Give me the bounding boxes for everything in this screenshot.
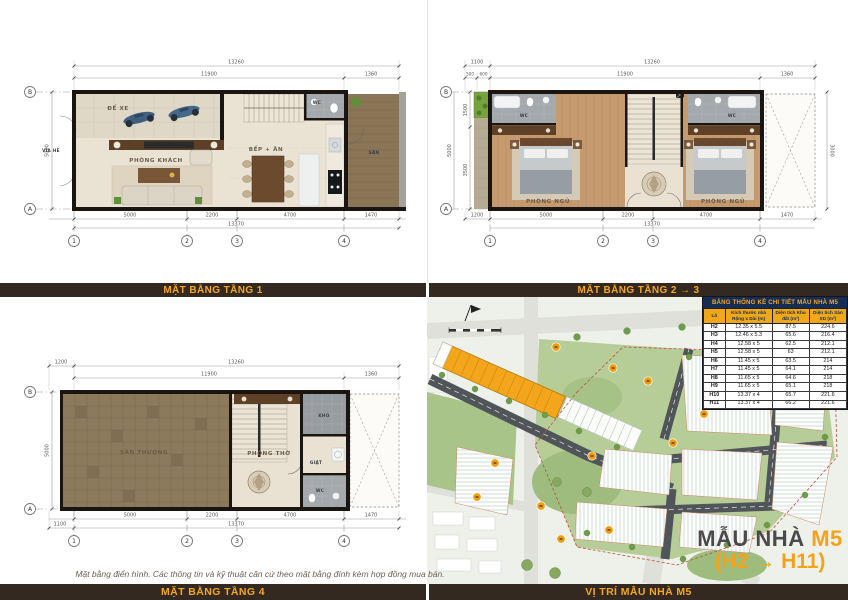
plan1-label-via-he: VỈA HÈ [42,148,60,153]
toilet-right [695,98,702,107]
table-row: H911.65 x 565.1218 [704,383,847,392]
grid-bubble-4: 4 [758,238,762,245]
caption-floor1: MẶT BẰNG TẦNG 1 [163,285,262,296]
wc-room [306,94,344,118]
table-row: H412.58 x 562.5212.1 [704,340,847,349]
spec-table-header-row: Lô Kích thước nhà Rộng x Dài (m) Diện tí… [704,309,847,324]
plan23-dim-bot-3: 4700 [700,213,713,219]
table-row: H1113.37 x 466.2221.6 [704,400,847,409]
col-header-floor-area: Diện tích Sàn XD (m²) [809,309,846,324]
grid-bubble-4: 4 [342,238,346,245]
toilet-left [527,98,534,107]
grid-bubble-2: 2 [601,238,605,245]
plan4-dim-bot-offset: 1100 [54,522,67,528]
col-header-land-area: Diện tích Khu đất (m²) [772,309,809,324]
plan1-dim-bot-2: 2200 [206,213,219,219]
plan23-dim-bot-total: 13370 [644,222,660,228]
plan23-dim-right-void: 3000 [829,144,835,157]
plan4-dim-bot-4: 1470 [365,513,378,519]
plan23-dim-500: 500 [466,72,474,77]
plan4-dim-bot-3: 4700 [284,513,297,519]
closet-right [688,126,760,135]
spec-table-title: BẢNG THỐNG KÊ CHI TIẾT MẪU NHÀ M5 [703,297,847,308]
floor-plan-4: 1200 13260 11900 1360 5000 5000 2200 470… [14,352,419,552]
grid-bubble-B: B [28,389,32,396]
toilet-f4 [309,494,316,503]
col-header-lo: Lô [704,309,726,324]
plan4-dim-bot-1: 5000 [124,513,137,519]
table-row: H212.35 x 5.587.5224.6 [704,323,847,332]
table-row: H512.58 x 563212.1 [704,349,847,358]
sofa [122,186,202,205]
plan1-dim-bot-4: 1470 [365,213,378,219]
plan1-dim-bot-1: 5000 [124,213,137,219]
floor-plan-2-3: 1100 13260 500 600 11900 1360 5000 1500 … [430,52,835,252]
caption-floor23: MẶT BẰNG TẦNG 2 → 3 [577,285,699,296]
plan23-dim-left-upper: 1500 [463,104,469,117]
plan4-dim-left: 5000 [45,444,51,457]
grid-bubble-3: 3 [235,538,239,545]
plan23-label-wc-left: WC [520,113,528,118]
bathtub-right [728,96,756,108]
model-title: MẪU NHÀ M5 [694,527,846,551]
plan1-dim-top-total: 13260 [228,60,244,66]
grid-bubble-B: B [444,89,448,96]
plan23-dim-600: 600 [480,72,488,77]
grid-bubble-1: 1 [72,238,76,245]
grid-bubble-2: 2 [185,538,189,545]
plan23-dim-left-lower: 3500 [463,164,469,177]
plan1-dim-top-right: 1360 [365,72,378,78]
plan23-dim-bot-4: 1470 [781,213,794,219]
model-title-code: M5 [811,526,843,551]
table-row: H611.45 x 563.5214 [704,357,847,366]
floor-plan-1: 13260 11900 1360 5000 5000 2200 4700 147… [14,52,419,252]
table-row: H312.46 x 5.365.6216.4 [704,332,847,341]
page: 13260 11900 1360 5000 5000 2200 4700 147… [0,0,848,600]
grid-bubble-3: 3 [235,238,239,245]
plan1-label-wc: WC [313,100,321,105]
plan23-label-wc-right: WC [728,113,736,118]
kitchen-island [299,154,319,206]
plan1-label-san: SÂN [369,150,380,155]
plan23-dim-bot-1: 5000 [540,213,553,219]
planter [474,92,490,118]
plan4-dim-top-total: 13260 [228,360,244,366]
plan4-label-san-thuong: SÂN THƯỢNG [120,449,168,456]
stove [328,170,342,194]
plan1-dim-bot-total: 13370 [228,222,244,228]
caption-bar-floor23: MẶT BẰNG TẦNG 2 → 3 [429,283,848,297]
plan4-dim-top-main: 11900 [201,372,217,378]
plan4-dim-bot-2: 2200 [206,513,219,519]
armchair [190,150,212,165]
plan23-dim-top-total: 13260 [644,60,660,66]
bed-left [510,138,582,194]
grid-bubble-3: 3 [651,238,655,245]
caption-site: VỊ TRÍ MẪU NHÀ M5 [585,586,692,598]
plan4-label-phong-tho: PHÒNG THỜ [247,450,291,457]
plant-icon [351,97,361,107]
plan23-dim-top-offset: 1100 [471,60,484,66]
plan4-label-kho: KHO [318,413,329,418]
model-title-block: MẪU NHÀ M5 (H2 → H11) [694,527,846,573]
plan1-dim-bot-3: 4700 [284,213,297,219]
plan4-label-wc: WC [316,488,324,493]
footnote: Mặt bằng điển hình. Các thông tin và kỹ … [55,569,465,579]
grid-bubble-B: B [28,89,32,96]
side-ledge [474,118,490,209]
plan1-dim-top-main: 11900 [201,72,217,78]
plan4-dim-bot-total: 13370 [228,522,244,528]
plan23-label-bed-right: PHÒNG NGỦ [701,197,745,205]
quadrant-divider [427,0,428,283]
plan1-stairs [244,94,304,122]
kitchen-counter [326,124,344,207]
plan23-dim-top-right: 1360 [781,72,794,78]
bathtub-left [494,96,520,108]
caption-bar-site: VỊ TRÍ MẪU NHÀ M5 [429,584,848,600]
plan23-label-bed-left: PHÒNG NGỦ [526,197,570,205]
plan1-label-phong-khach: PHÒNG KHÁCH [129,157,183,164]
caption-bar-floor1: MẶT BẰNG TẦNG 1 [0,283,426,297]
bed-right [684,138,756,194]
table-row: H811.65 x 564.6218 [704,374,847,383]
table-row: H711.45 x 564.1214 [704,366,847,375]
col-header-size: Kích thước nhà Rộng x Dài (m) [725,309,772,324]
plan4-label-giat: GIẶT [310,460,322,465]
model-title-label: MẪU NHÀ [697,526,804,551]
plan23-dim-bot-offset: 1200 [471,213,484,219]
caption-floor4: MẶT BẰNG TẦNG 4 [161,586,265,598]
plan4-dim-top-offset: 1200 [55,360,68,366]
caption-bar-floor4: MẶT BẰNG TẦNG 4 [0,584,426,600]
washing-machine [332,448,344,461]
grid-bubble-1: 1 [72,538,76,545]
plan4-dim-top-right: 1360 [365,372,378,378]
plan23-dim-top-main: 11900 [617,72,633,78]
model-title-range: (H2 → H11) [694,551,846,574]
plan23-dim-bot-2: 2200 [622,213,635,219]
grid-bubble-4: 4 [342,538,346,545]
dining-table [252,156,284,202]
table-row: H1013.37 x 465.7221.6 [704,392,847,401]
toilet [330,103,338,113]
spec-table: BẢNG THỐNG KÊ CHI TIẾT MẪU NHÀ M5 Lô Kíc… [702,296,848,410]
plan1-label-bep-an: BẾP + ĂN [249,145,284,153]
plan23-dim-left-total: 5000 [447,144,453,157]
plan1-label-de-xe: ĐỂ XE [107,104,129,112]
grid-bubble-1: 1 [488,238,492,245]
grid-bubble-2: 2 [185,238,189,245]
